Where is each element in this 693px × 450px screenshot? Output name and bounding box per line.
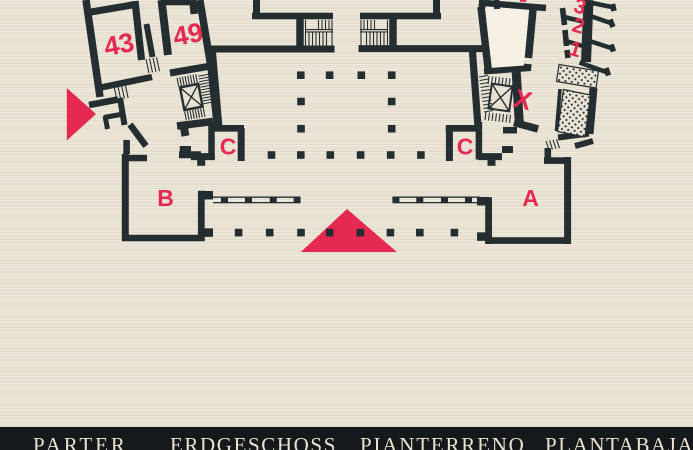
svg-text:43: 43 bbox=[101, 27, 136, 62]
svg-text:B: B bbox=[157, 185, 174, 211]
svg-text:C: C bbox=[220, 134, 237, 160]
svg-text:C: C bbox=[457, 134, 474, 160]
svg-text:A: A bbox=[522, 185, 539, 211]
svg-text:49: 49 bbox=[170, 17, 205, 52]
